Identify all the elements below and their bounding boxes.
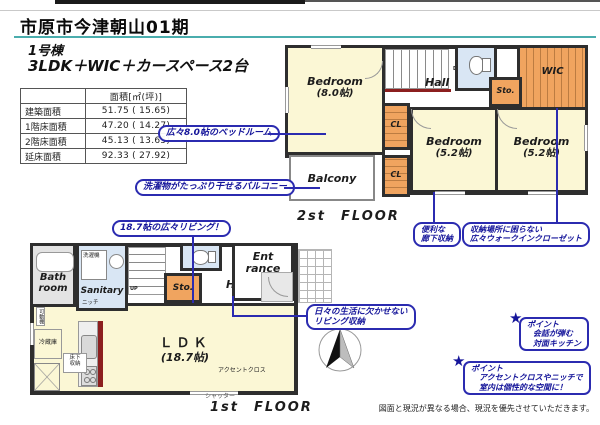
point-accent-line2: 室内は個性的な空間に！ (479, 383, 583, 392)
niche-label: ニッチ (82, 301, 99, 307)
room-wic: WIC (517, 45, 588, 110)
bedroom-right-size: (5.2帖) (498, 148, 585, 159)
callout-bedroom-2f: 広々8.0帖のベッドルーム (158, 125, 280, 142)
floor2-label: 2st FLOOR (297, 210, 400, 225)
area-row-label: 2階床面積 (21, 134, 86, 149)
toilet-tank (482, 58, 491, 72)
bath-label-line1: Bath (33, 272, 73, 283)
north-arrow-icon (316, 326, 364, 374)
fridge-box: 冷蔵庫 (34, 329, 62, 359)
floor2-plan: Bedroom (8.0帖) Balcony DN Hall WIC Sto. … (285, 45, 588, 205)
area-row-value: 51.75 ( 15.65) (86, 104, 187, 119)
title-underline (14, 36, 596, 38)
top-bar-dark (55, 0, 305, 4)
room-sto-1f: Sto. (164, 273, 202, 303)
hall-2f-label: Hall (425, 77, 449, 89)
sto-2f-label: Sto. (492, 87, 519, 96)
area-row-label: 延床面積 (21, 149, 86, 164)
area-table-unit-header: 面積[㎡(坪)] (86, 89, 187, 104)
cl-upper-label: CL (385, 121, 407, 130)
fridge-label: 冷蔵庫 (35, 340, 61, 346)
floor1-label: 1st FLOOR (210, 401, 313, 416)
bedroom-right-label: Bedroom (498, 136, 585, 148)
callout-living-storage-line1: 日々の生活に欠かせない (314, 307, 408, 317)
callout-hall-storage-line2: 廊下収納 (421, 234, 453, 243)
movable-shelf-closet (34, 363, 60, 391)
area-row-value: 92.33 ( 27.92) (86, 149, 187, 164)
callout-wic-line2: 広々ウォークインクローゼット (470, 234, 582, 243)
washer-label: 洗濯機 (83, 254, 100, 260)
callout-wic-line1: 収納場所に困らない (470, 225, 582, 234)
disclaimer: 図面と現況が異なる場合、現況を優先させていただきます。 (379, 403, 594, 414)
callout-living-storage: 日々の生活に欠かせない リビング収納 (306, 304, 416, 330)
toilet-tank (208, 251, 216, 263)
bathtub-icon (36, 252, 74, 272)
point-kitchen-line1: 会話が弾む (533, 329, 581, 338)
movable-shelf-label: 可動棚 (36, 307, 45, 326)
room-balcony: Balcony (289, 155, 375, 201)
callout-balcony: 洗濯物がたっぷり干せるバルコニー (135, 179, 295, 196)
room-bath: Bath room (30, 243, 76, 307)
floor1-plan: ＬＤＫ (18.7帖) アクセントクロス Bath room 洗濯機 Sanit… (30, 243, 298, 395)
flyer-page: 市原市今津朝山01期 1号棟 3LDK＋WIC＋カースペース2台 面積[㎡(坪)… (0, 0, 600, 425)
area-table-corner (21, 89, 86, 104)
top-bar-thin (305, 0, 600, 2)
sanitary-label: Sanitary (79, 286, 125, 296)
bedroom-main-size: (8.0帖) (288, 88, 382, 99)
cl-lower-label: CL (385, 171, 407, 180)
table-row: 建築面積 51.75 ( 15.65) (21, 104, 187, 119)
stairs-up-label: UP (130, 287, 138, 292)
area-row-label: 建築面積 (21, 104, 86, 119)
point-kitchen-callout: ポイント 会話が弾む 対面キッチン (519, 317, 589, 351)
point-accent-line1: アクセントクロスやニッチで (479, 373, 583, 382)
callout-wic: 収納場所に困らない 広々ウォークインクローゼット (462, 222, 590, 247)
bedroom-center-size: (5.2帖) (413, 148, 495, 159)
page-title: 市原市今津朝山01期 (20, 13, 190, 38)
callout-hall-storage: 便利な 廊下収納 (413, 222, 461, 247)
kitchen-accent-wall (98, 321, 103, 387)
point-accent-callout: ポイント アクセントクロスやニッチで 室内は個性的な空間に！ (463, 361, 591, 395)
building-spec: 3LDK＋WIC＋カースペース2台 (28, 55, 248, 76)
balcony-label: Balcony (291, 173, 373, 185)
room-sto-2f: Sto. (489, 77, 522, 107)
room-toilet-1f (180, 243, 222, 271)
ldk-size: (18.7帖) (130, 352, 240, 364)
underfloor-storage-label: 床下収納 (68, 356, 82, 368)
point-accent-title: ポイント (471, 364, 583, 373)
top-hairline (0, 10, 600, 11)
sto-1f-label: Sto. (167, 283, 199, 293)
callout-living: 18.7帖の広々リビング！ (112, 220, 231, 237)
point-kitchen-line2: 対面キッチン (533, 339, 581, 348)
room-cl-upper: CL (382, 103, 410, 150)
room-cl-lower: CL (382, 155, 410, 197)
callout-hall-storage-line1: 便利な (421, 225, 453, 234)
accent-cloth-label: アクセントクロス (218, 368, 266, 374)
point-kitchen-title: ポイント (527, 320, 581, 329)
area-row-label: 1階床面積 (21, 119, 86, 134)
stair-rail-accent (385, 89, 451, 92)
ldk-label: ＬＤＫ (130, 337, 240, 352)
underfloor-storage-box: 床下収納 (63, 353, 87, 373)
callout-living-storage-line2: リビング収納 (314, 317, 408, 327)
toilet-icon (192, 250, 209, 265)
porch (298, 249, 332, 303)
bath-label-line2: room (33, 283, 73, 294)
sink-icon (109, 254, 124, 269)
wic-label: WIC (520, 66, 585, 77)
table-row: 延床面積 92.33 ( 27.92) (21, 149, 187, 164)
bedroom-center-label: Bedroom (413, 136, 495, 148)
